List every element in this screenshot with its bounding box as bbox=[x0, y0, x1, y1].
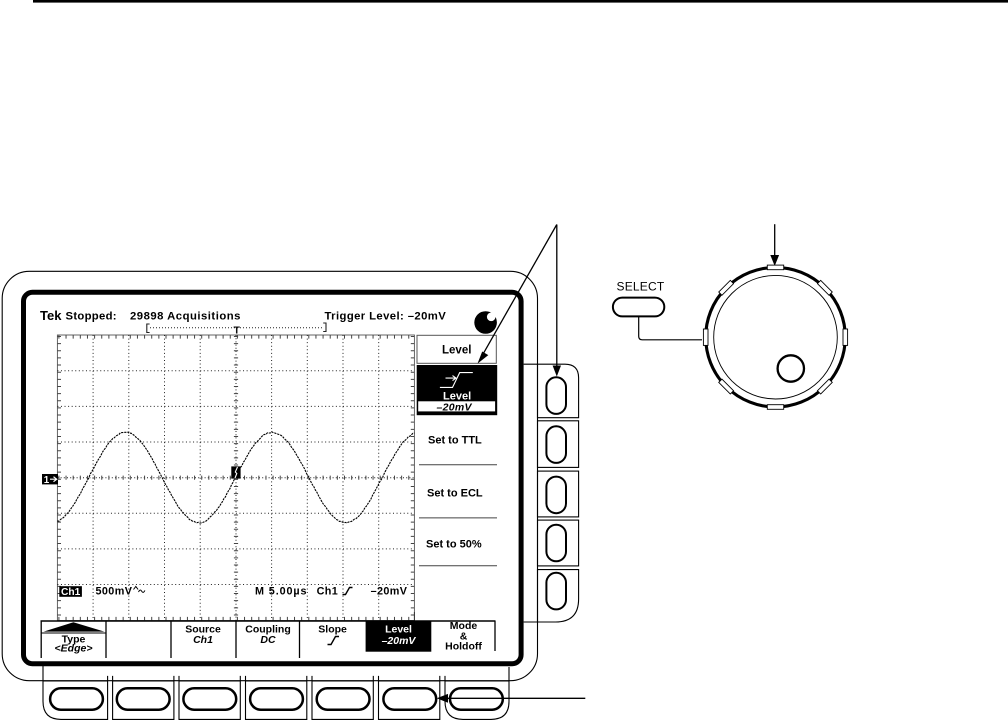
svg-text:Set to TTL: Set to TTL bbox=[428, 434, 482, 446]
svg-text:–20mV: –20mV bbox=[371, 586, 408, 598]
svg-text:DC: DC bbox=[260, 634, 276, 646]
svg-text:Set to ECL: Set to ECL bbox=[427, 487, 483, 499]
svg-text:<Edge>: <Edge> bbox=[55, 643, 93, 655]
svg-text:500mV: 500mV bbox=[96, 586, 133, 598]
svg-text:Level: Level bbox=[442, 345, 471, 357]
svg-text:Trigger Level: –20mV: Trigger Level: –20mV bbox=[325, 311, 447, 323]
svg-text:M 5.00µs: M 5.00µs bbox=[255, 586, 307, 598]
svg-text:Ch1: Ch1 bbox=[317, 586, 339, 598]
svg-text:1: 1 bbox=[44, 475, 50, 486]
svg-text:29898 Acquisitions: 29898 Acquisitions bbox=[130, 311, 241, 323]
svg-text:Set to 50%: Set to 50% bbox=[426, 538, 482, 550]
svg-text:–20mV: –20mV bbox=[382, 635, 417, 647]
svg-text:T: T bbox=[233, 324, 240, 336]
svg-text:Tek: Tek bbox=[40, 308, 62, 323]
svg-text:–20mV: –20mV bbox=[437, 401, 473, 413]
svg-text:Slope: Slope bbox=[318, 624, 347, 636]
svg-text:Ch1: Ch1 bbox=[61, 587, 81, 598]
svg-text:Ch1: Ch1 bbox=[193, 634, 213, 646]
svg-text:SELECT: SELECT bbox=[617, 280, 665, 294]
svg-text:Holdoff: Holdoff bbox=[445, 641, 482, 653]
svg-text:Stopped:: Stopped: bbox=[66, 311, 117, 323]
svg-text:Level: Level bbox=[385, 624, 412, 636]
